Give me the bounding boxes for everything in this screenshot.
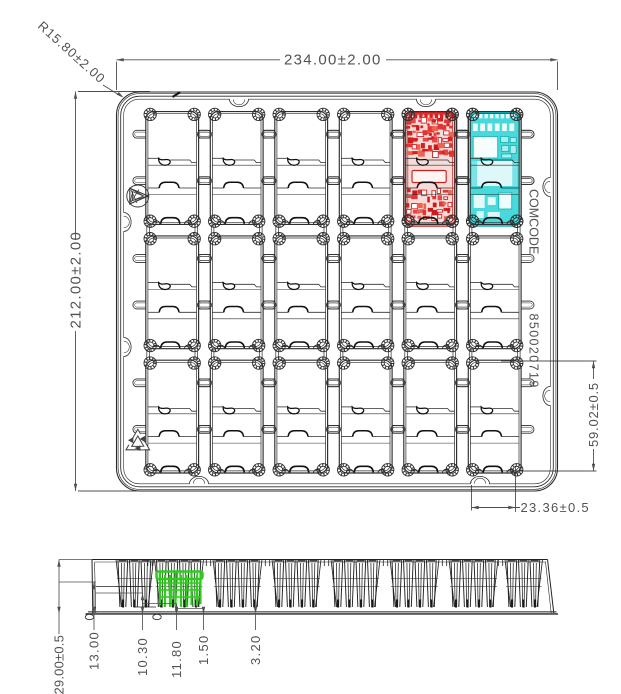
svg-text:3.20: 3.20 — [248, 634, 263, 665]
svg-text:850020719: 850020719 — [526, 314, 540, 389]
svg-text:10.30: 10.30 — [135, 637, 150, 676]
svg-text:59.02±0.5: 59.02±0.5 — [586, 382, 601, 447]
svg-text:COMCODE: COMCODE — [526, 189, 540, 254]
svg-text:13.00: 13.00 — [87, 631, 102, 670]
svg-text:212.00±2.00: 212.00±2.00 — [67, 231, 84, 329]
svg-text:234.00±2.00: 234.00±2.00 — [284, 52, 382, 69]
svg-text:23.36±0.5: 23.36±0.5 — [521, 500, 590, 515]
svg-text:1.50: 1.50 — [196, 634, 211, 665]
svg-text:29.00±0.5: 29.00±0.5 — [52, 635, 67, 694]
svg-text:11.80: 11.80 — [169, 640, 184, 678]
